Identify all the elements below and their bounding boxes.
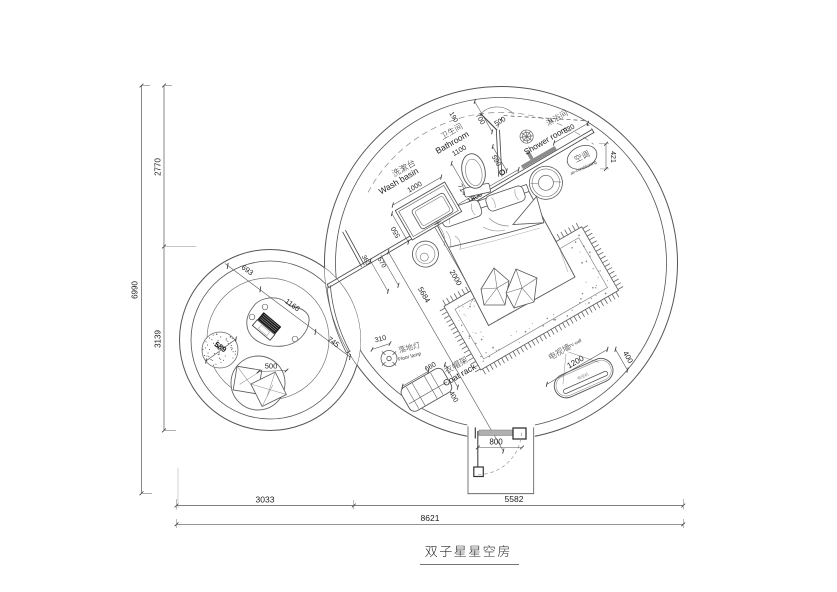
svg-text:500: 500	[265, 362, 278, 371]
svg-text:3139: 3139	[154, 330, 163, 348]
svg-text:8621: 8621	[421, 513, 440, 523]
svg-text:6990: 6990	[131, 281, 140, 299]
svg-text:2770: 2770	[154, 158, 163, 176]
svg-text:3033: 3033	[256, 495, 275, 505]
svg-text:5582: 5582	[505, 494, 524, 504]
svg-text:800: 800	[489, 438, 503, 447]
svg-text:421: 421	[609, 151, 616, 163]
